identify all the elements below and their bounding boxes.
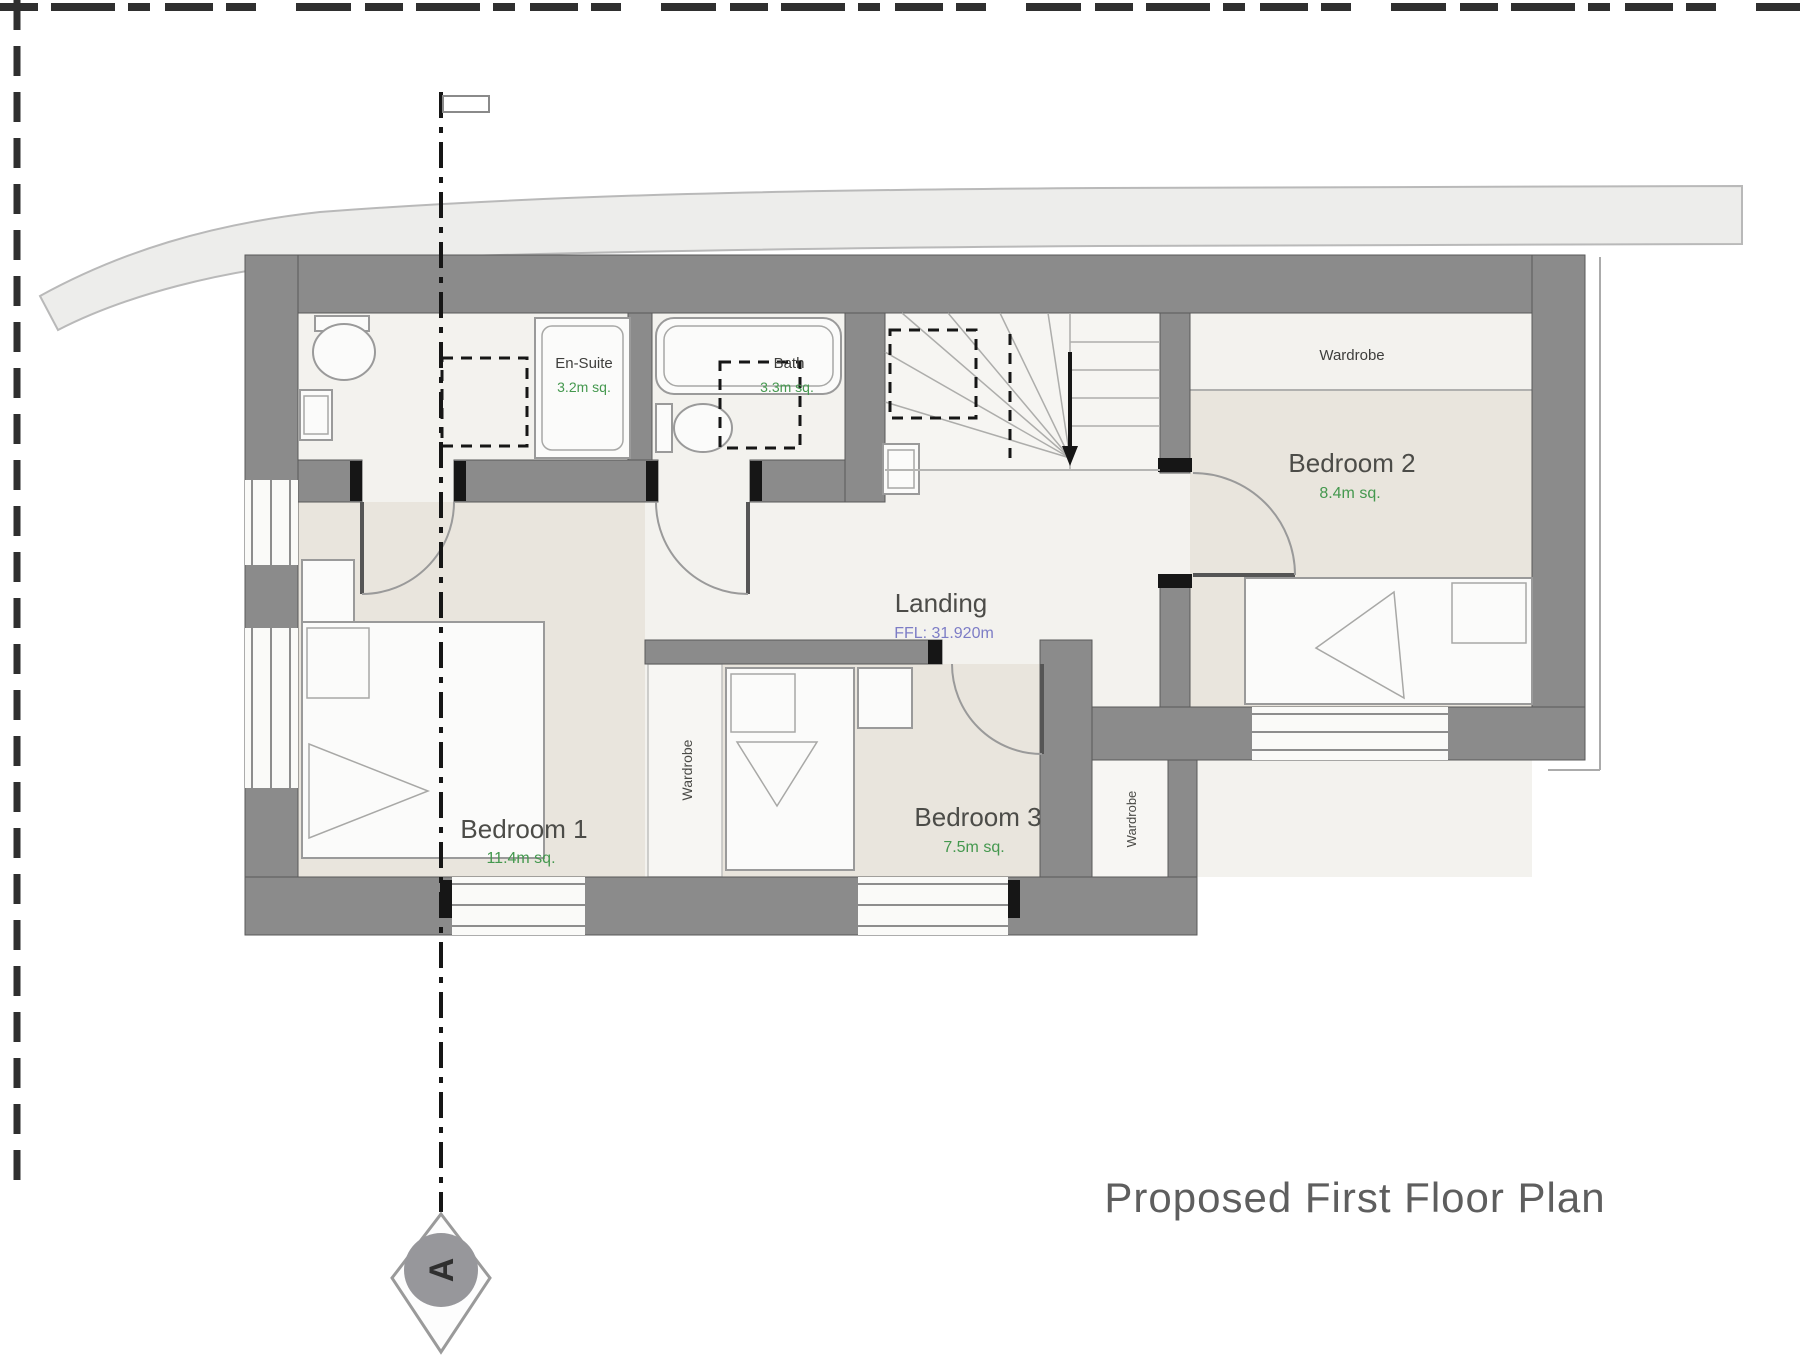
wall-bedroom2-left-upper [1160,313,1190,473]
wall-right [1532,255,1585,760]
wall-mid-horizontal [454,460,658,502]
room-label-bedroom3: Bedroom 3 [914,802,1041,832]
room-area-ensuite: 3.2m sq. [557,379,611,395]
room-area-bedroom1: 11.4m sq. [486,850,555,867]
toilet-icon [674,404,732,452]
toilet-icon [313,324,375,380]
room-label-bedroom1: Bedroom 1 [460,814,587,844]
wall-top [245,255,1585,313]
room-label-landing: Landing [895,588,988,618]
wardrobe-label-middle: Wardrobe [679,739,695,800]
window-bottom-2 [858,877,1008,935]
wall-bottom [245,877,1197,935]
wardrobe-label-bedroom2: Wardrobe [1319,347,1384,364]
floor-plan-drawing: A En-Suite 3.2m sq. Bath 3.3m sq. Wardro… [0,0,1800,1361]
window-left-1 [245,480,298,565]
stair-floor [885,313,1160,470]
bedside-table [858,668,912,728]
room-area-bath: 3.3m sq. [760,379,814,395]
bedside-table [302,560,354,622]
wardrobe-label-extension: Wardrobe [1124,791,1139,848]
drawing-title: Proposed First Floor Plan [1104,1174,1605,1221]
wall-ensuite-bath-divider [628,313,652,460]
window-bottom-1 [452,877,585,935]
wall-bedroom2-left-lower [1160,575,1190,707]
window-bedroom2-bottom [1252,707,1448,760]
sink-icon [300,390,332,440]
wall-bath-stairs [845,313,885,502]
section-marker-a: A [392,1214,490,1352]
room-label-ensuite: En-Suite [555,355,613,372]
room-area-bedroom2: 8.4m sq. [1319,485,1380,502]
wall-extension-right [1168,760,1197,877]
section-line-flag [443,96,489,112]
room-label-bath: Bath [774,355,805,372]
room-label-bedroom2: Bedroom 2 [1288,448,1415,478]
window-left-2 [245,628,298,788]
wall-bedroom3-top [645,640,942,664]
section-marker-letter: A [423,1258,461,1283]
bed2-icon [1245,578,1532,704]
landing-ffl-label: FFL: 31.920m [894,625,994,642]
drawing-sheet: A En-Suite 3.2m sq. Bath 3.3m sq. Wardro… [0,0,1800,1361]
toilet-cistern-icon [656,404,672,452]
wall-left [245,255,298,935]
wall-bedroom3-right [1040,640,1092,877]
room-area-bedroom3: 7.5m sq. [943,839,1004,856]
